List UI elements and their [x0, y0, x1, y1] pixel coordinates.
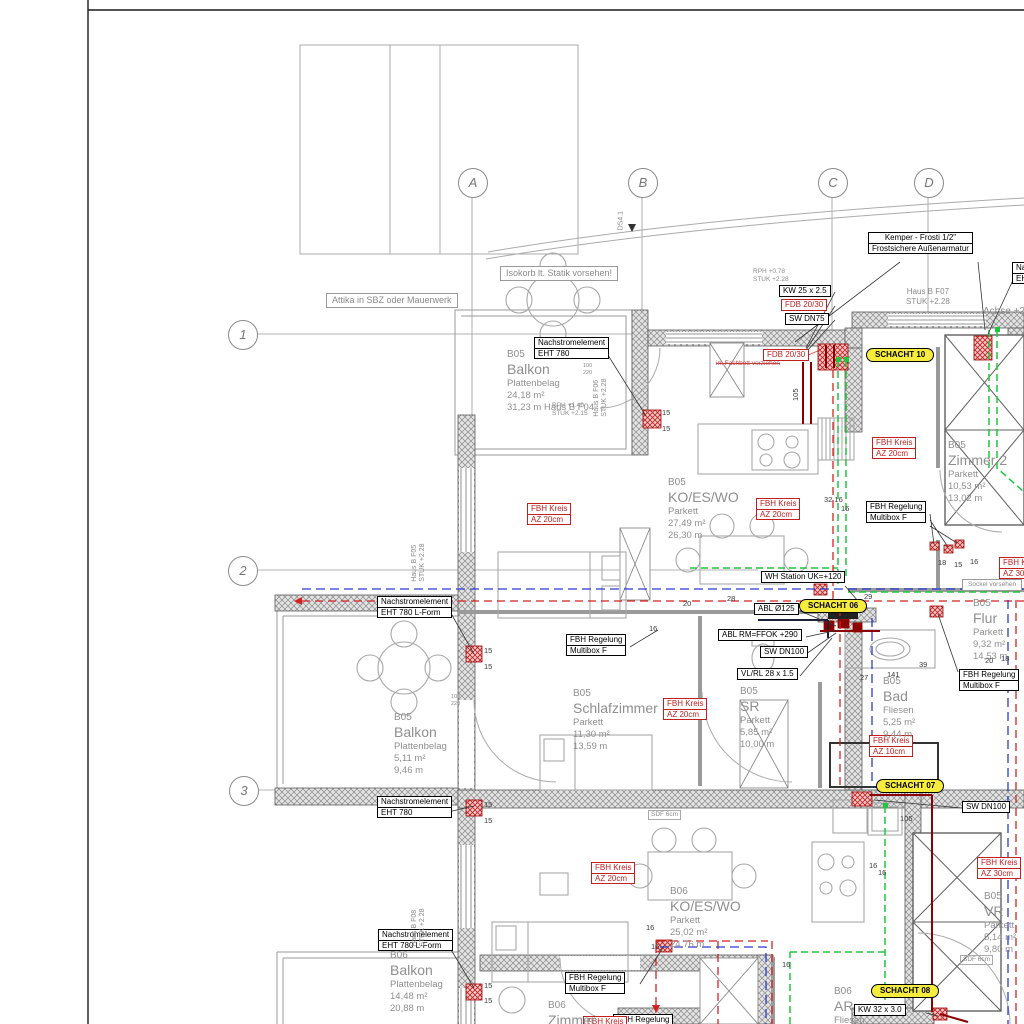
kitchen-counter — [698, 418, 854, 474]
wardrobe-icon — [540, 873, 568, 895]
floor-plan-drawing — [0, 0, 1024, 1024]
dining-set — [628, 828, 756, 900]
kitchen-counter — [812, 800, 902, 922]
round-table-set — [506, 253, 600, 347]
balcony-outlines — [277, 310, 632, 1024]
canopy-lines — [486, 198, 1024, 259]
dining-set — [676, 514, 808, 584]
duct-lines — [758, 620, 828, 638]
bed-icon — [492, 922, 628, 982]
axis-grid — [257, 197, 928, 790]
bed-icon — [540, 735, 652, 790]
bed-icon — [498, 552, 626, 618]
round-table-set — [357, 621, 451, 715]
floor-plan-sheet: ABCD123NachstromelementEHT 780Kemper - F… — [0, 0, 1024, 1024]
chair-icon — [499, 987, 525, 1013]
sheet-frame — [88, 0, 1024, 1024]
roof-outline — [300, 45, 578, 254]
